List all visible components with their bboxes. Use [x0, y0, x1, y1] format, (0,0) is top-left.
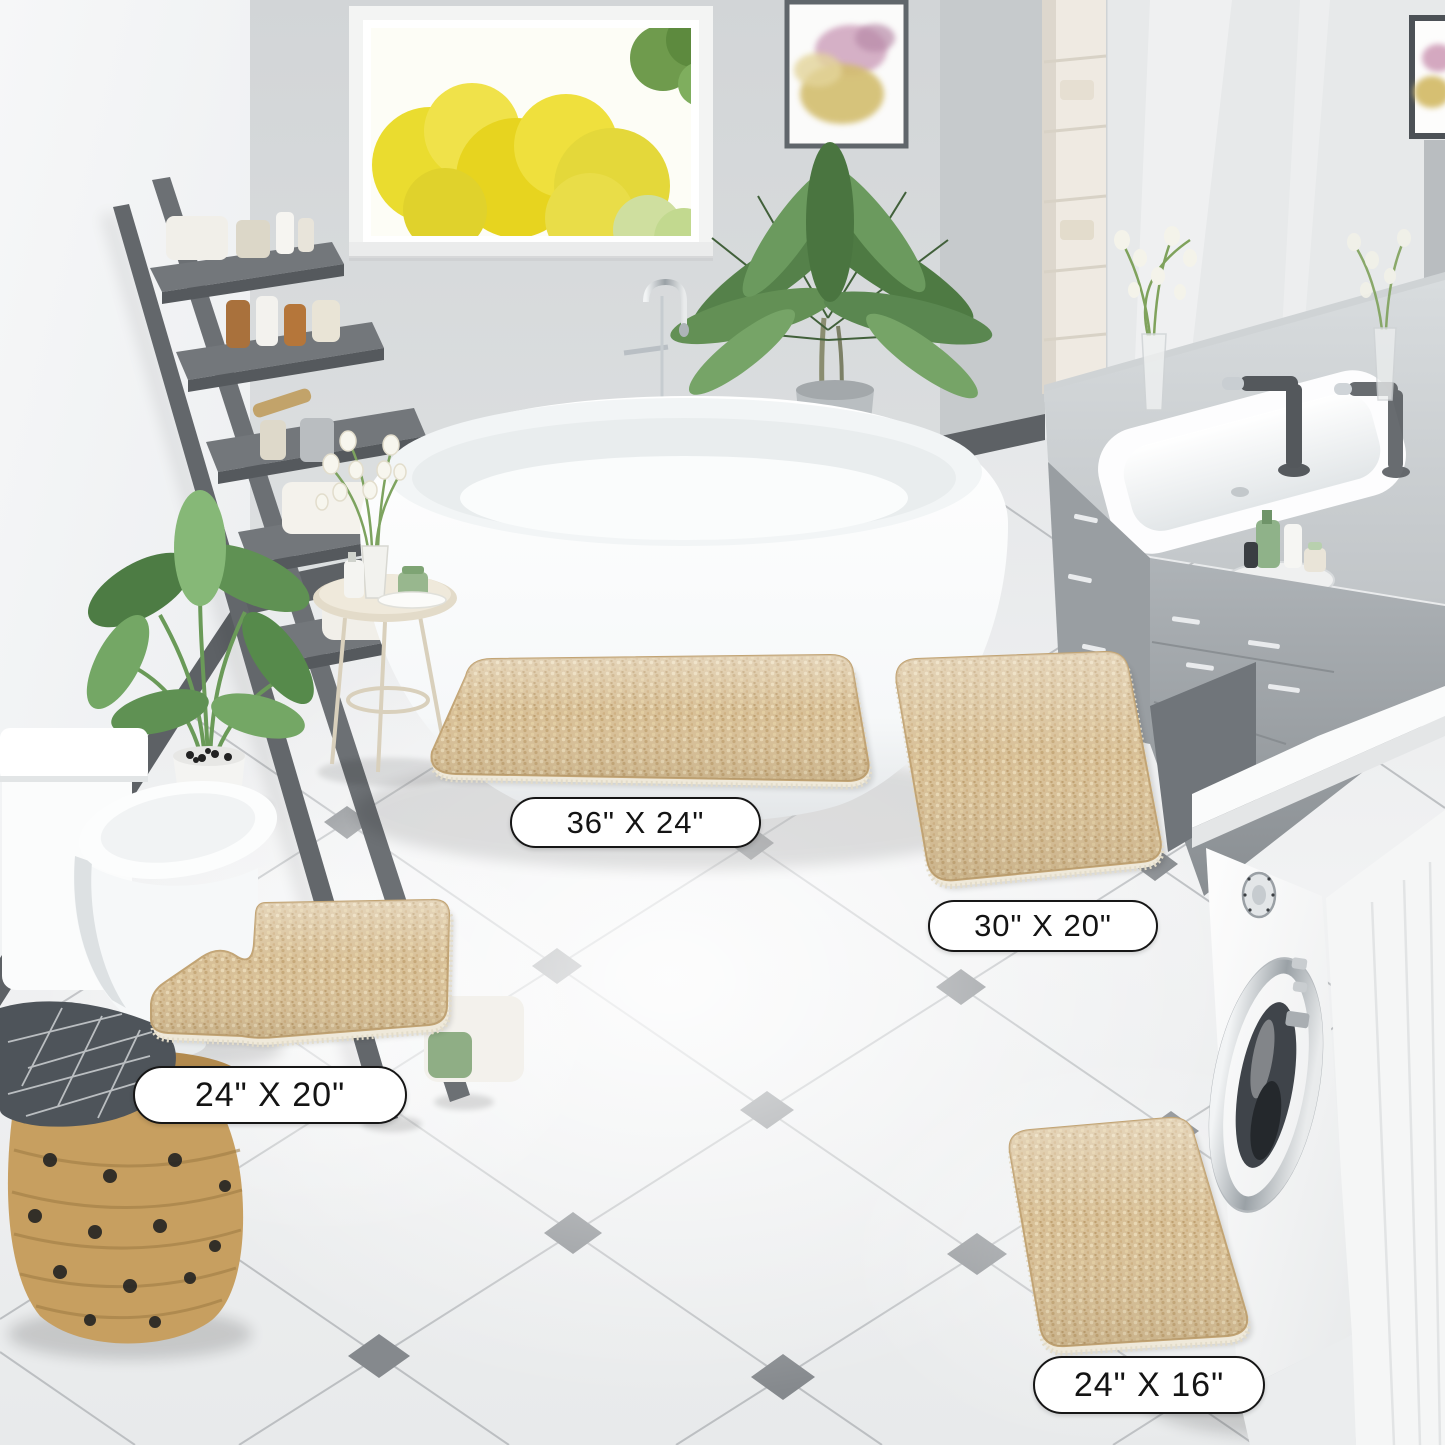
- rug-runner: [896, 652, 1165, 889]
- window: [349, 6, 722, 268]
- washer-dial: [1243, 873, 1275, 917]
- size-label-large-rug: 36" X 24": [510, 797, 761, 848]
- size-label-contour-text: 24" X 20": [195, 1076, 345, 1115]
- size-label-runner-rug: 30" X 20": [928, 900, 1158, 952]
- product-image: 36" X 24" 30" X 20" 24" X 20" 24" X 16": [0, 0, 1445, 1445]
- rug-large: [432, 655, 874, 790]
- size-label-contour-rug: 24" X 20": [133, 1066, 407, 1124]
- bathroom-scene: [0, 0, 1445, 1445]
- size-label-small-text: 24" X 16": [1074, 1366, 1224, 1405]
- size-label-large-text: 36" X 24": [567, 805, 705, 841]
- size-label-runner-text: 30" X 20": [974, 908, 1112, 944]
- wall-art: [787, 2, 906, 146]
- linen-cabinet: [1042, 0, 1106, 394]
- size-label-small-rug: 24" X 16": [1033, 1356, 1265, 1414]
